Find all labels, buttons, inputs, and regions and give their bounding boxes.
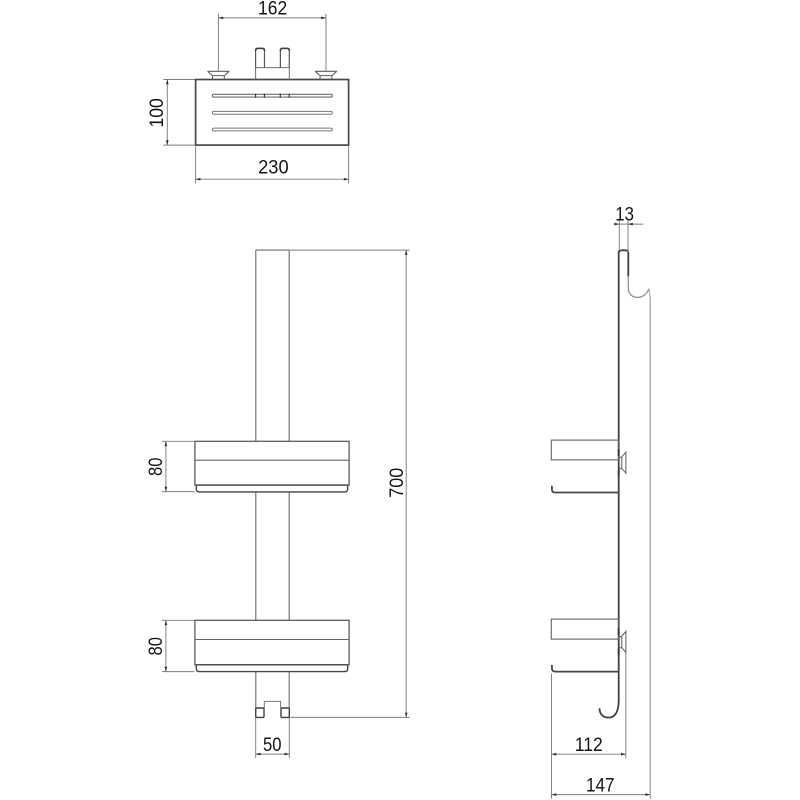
svg-text:162: 162 <box>258 0 287 20</box>
svg-text:700: 700 <box>387 468 408 498</box>
svg-text:80: 80 <box>146 458 167 476</box>
svg-text:100: 100 <box>147 98 168 127</box>
svg-text:230: 230 <box>258 158 289 179</box>
svg-text:50: 50 <box>263 735 282 756</box>
svg-text:13: 13 <box>615 204 634 225</box>
svg-text:80: 80 <box>146 637 167 655</box>
svg-text:147: 147 <box>586 775 615 796</box>
svg-text:112: 112 <box>575 735 603 756</box>
